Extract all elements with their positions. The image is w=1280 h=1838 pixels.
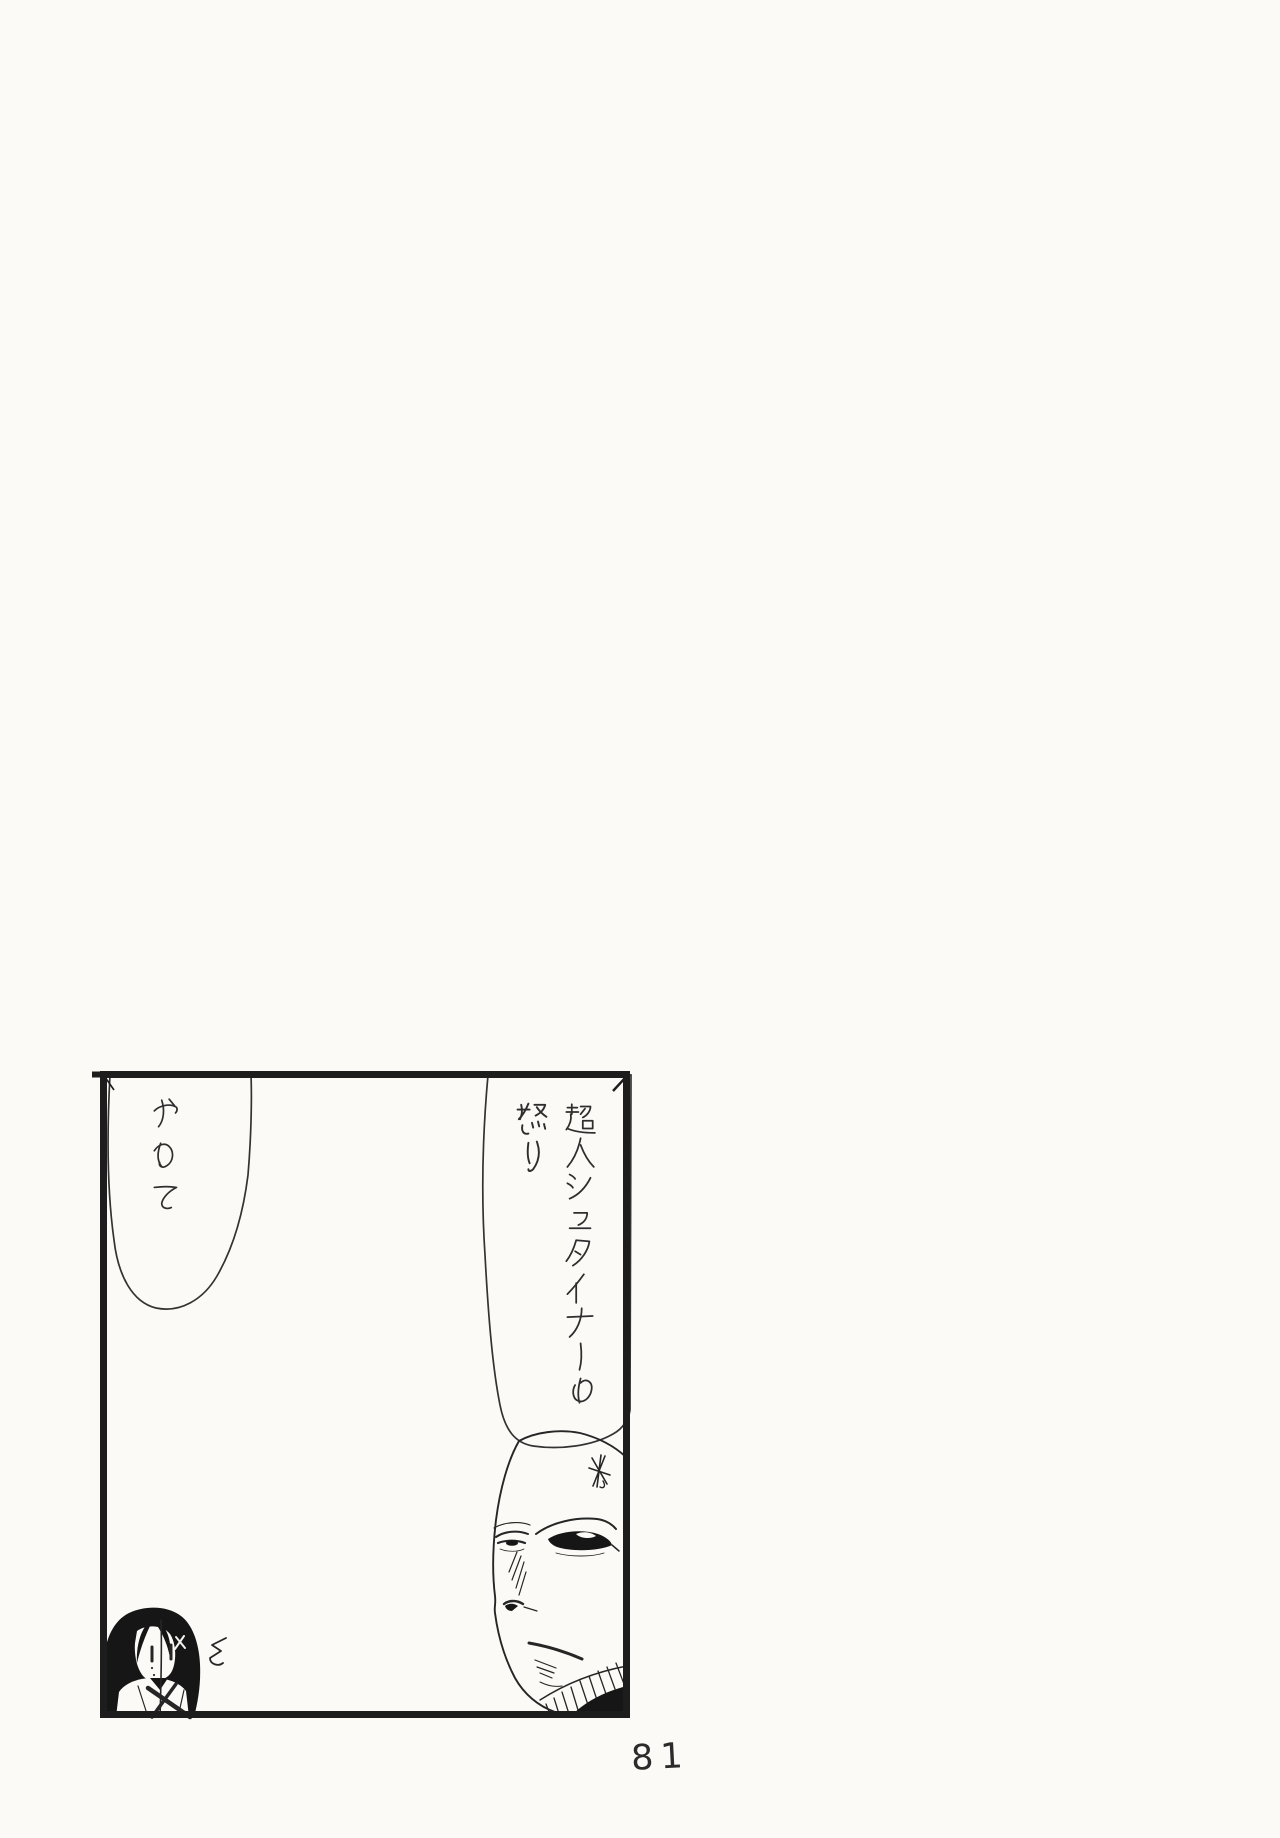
girl-character bbox=[104, 1608, 200, 1717]
speech-bubble-right bbox=[483, 1075, 631, 1448]
comic-panel bbox=[92, 1074, 631, 1717]
girl-cheek-dot-2 bbox=[153, 1674, 155, 1676]
manga-page: 81 bbox=[0, 0, 1280, 1838]
girl-cheek-dot-1 bbox=[151, 1667, 153, 1669]
page-artwork: 81 bbox=[0, 0, 1280, 1838]
speech-bubble-right-outline bbox=[483, 1075, 631, 1448]
page-number: 81 bbox=[630, 1736, 691, 1779]
